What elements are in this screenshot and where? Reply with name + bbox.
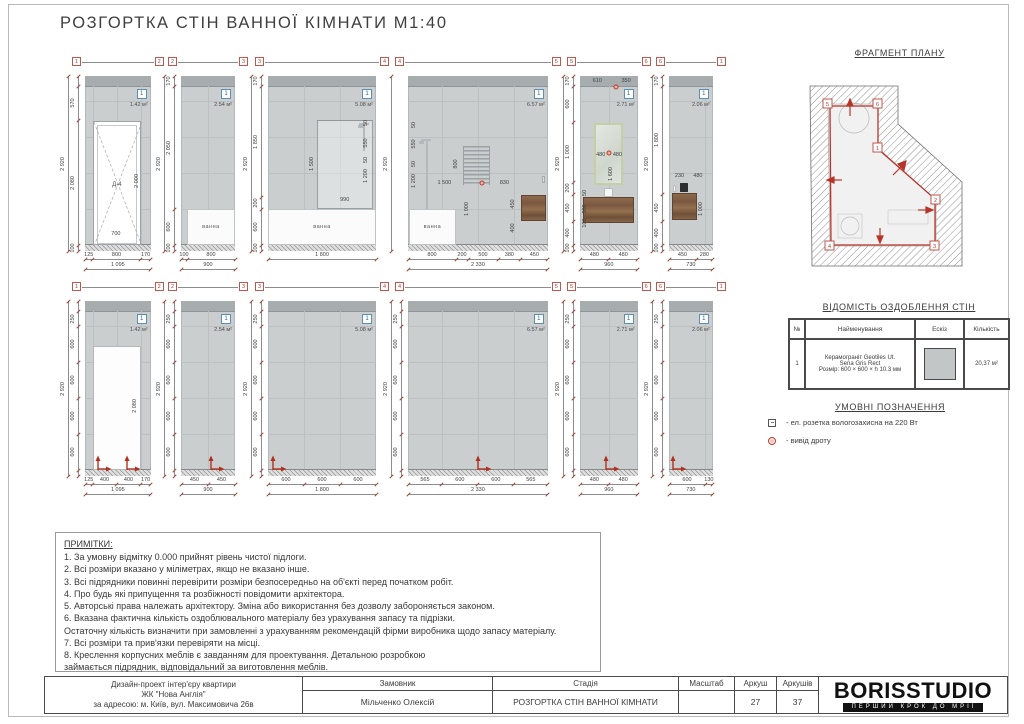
dimension-label: 600 xyxy=(166,448,172,457)
dim-line xyxy=(563,301,564,476)
bathtub: ванна xyxy=(268,209,376,245)
wall-elevation: 11.42 м²2 080 xyxy=(85,301,151,476)
wood-cabinet xyxy=(583,197,634,223)
dimension-label: 600 xyxy=(393,376,399,385)
svg-text:5: 5 xyxy=(826,102,829,108)
dimension-label: 450 xyxy=(530,252,539,258)
dimension-label: 2 920 xyxy=(644,382,650,396)
fragment-plan-title: ФРАГМЕНТ ПЛАНУ xyxy=(792,48,1007,58)
dimension-label: 2 920 xyxy=(156,157,162,171)
sheets-total-label: Аркушів xyxy=(777,677,818,691)
dimension-label: 500 xyxy=(478,252,487,258)
client-cell: Замовник Мільченко Олексій xyxy=(303,677,493,713)
sheet-number-value: 27 xyxy=(735,691,776,713)
wall-elevation: 11.42 м²Д-42 000700 xyxy=(85,76,151,251)
dimension-label: 600 xyxy=(565,412,571,421)
wall-marker: 6 xyxy=(642,282,651,291)
ceiling-band xyxy=(669,76,713,87)
dimension-label: 800 xyxy=(112,252,121,258)
dimension-label: 100 xyxy=(166,244,172,253)
sheets-total-cell: Аркушів 37 xyxy=(777,677,819,713)
dimension-label: 600 xyxy=(166,223,172,232)
dimension-label: 600 xyxy=(70,340,76,349)
dim-line xyxy=(669,269,713,270)
wall-marker: 4 xyxy=(395,57,404,66)
dimension-label: 380 xyxy=(505,252,514,258)
dimension-label: 50 xyxy=(363,120,369,126)
area-label: 5.08 м² xyxy=(355,327,373,333)
plan-wall-marker: 3 xyxy=(930,241,939,250)
dimension-total: 900 xyxy=(203,487,212,493)
wall-marker: 5 xyxy=(567,57,576,66)
dimension-label: 2 920 xyxy=(60,157,66,171)
dimension-label: 230 xyxy=(675,173,684,179)
socket-icon xyxy=(764,419,780,427)
note-line: Остаточну кількість визначити при замовл… xyxy=(64,625,592,637)
sink xyxy=(673,185,676,192)
wall-marker: 3 xyxy=(239,282,248,291)
legend-item-text: - ел. розетка вологозахисна на 220 Вт xyxy=(786,418,918,427)
dim-line xyxy=(669,494,713,495)
wall-elevation: 12.06 м²2304801 000 xyxy=(669,76,713,251)
plan-wall-marker: 2 xyxy=(931,195,940,204)
dimension-label: 1 500 xyxy=(437,180,451,186)
dimension-label: 50 xyxy=(582,190,588,196)
dimension-total: 1 095 xyxy=(111,487,125,493)
dimension-label: 600 xyxy=(253,340,259,349)
dimension-label: 1 000 xyxy=(464,202,470,216)
dimension-label: 830 xyxy=(500,180,509,186)
wall-marker: 2 xyxy=(155,282,164,291)
dim-line xyxy=(85,269,151,270)
area-label: 6.57 м² xyxy=(527,327,545,333)
wall-marker: 2 xyxy=(155,57,164,66)
dimension-label: 800 xyxy=(453,159,459,168)
dimension-total: 730 xyxy=(686,487,695,493)
dimension-label: 480 xyxy=(596,152,605,158)
tile-joint-h xyxy=(669,137,713,138)
dimension-label: 2 000 xyxy=(134,174,140,188)
tile-joint-v xyxy=(340,311,341,470)
wire-outlet-icon xyxy=(480,180,485,185)
plan-wall-marker: 4 xyxy=(825,241,834,250)
dim-line xyxy=(268,494,376,495)
dim-line xyxy=(85,494,151,495)
dimension-label: 600 xyxy=(565,376,571,385)
floor-hatch xyxy=(181,244,235,251)
marker-line xyxy=(577,62,641,63)
wood-cabinet xyxy=(672,193,697,219)
finish-table-cell-num: 1 xyxy=(789,339,805,389)
dim-line xyxy=(181,259,235,260)
bathtub: ванна xyxy=(409,209,455,245)
svg-text:1: 1 xyxy=(876,146,879,152)
area-label: 2.06 м² xyxy=(692,102,710,108)
area-badge: 1 xyxy=(221,314,231,324)
note-line: 6. Вказана фактична кількість оздоблювал… xyxy=(64,612,592,624)
wall-marker: 5 xyxy=(567,282,576,291)
note-line: займається підрядник, відповідальний за … xyxy=(64,661,592,673)
tile-origin-axis-icon xyxy=(270,455,288,473)
dimension-label: 600 xyxy=(654,376,660,385)
note-line: 2. Всі розміри вказано у міліметрах, якщ… xyxy=(64,563,592,575)
area-badge: 1 xyxy=(534,314,544,324)
door-tag: Д-4 xyxy=(112,182,121,188)
dimension-label: 250 xyxy=(166,314,172,323)
area-label: 1.42 м² xyxy=(130,327,148,333)
dimension-label: 400 xyxy=(565,229,571,238)
dim-line xyxy=(408,259,548,260)
tile-joint-v xyxy=(705,311,706,470)
dimension-label: 565 xyxy=(526,477,535,483)
wire-outlet-icon xyxy=(768,437,776,445)
area-badge: 1 xyxy=(624,314,634,324)
area-label: 2.71 м² xyxy=(617,327,635,333)
dim-line xyxy=(573,76,574,251)
dimension-label: 800 xyxy=(206,252,215,258)
wall-elevation: 16.57 м² xyxy=(408,301,548,476)
area-badge: 1 xyxy=(624,89,634,99)
dim-line xyxy=(662,76,663,251)
area-badge: 1 xyxy=(137,314,147,324)
dimension-label: 600 xyxy=(491,477,500,483)
dimension-label: 600 xyxy=(393,340,399,349)
wall-elevation: 12.06 м² xyxy=(669,301,713,476)
dimension-label: 600 xyxy=(166,412,172,421)
dim-line xyxy=(251,76,252,251)
dimension-label: 170 xyxy=(141,477,150,483)
wall-marker: 3 xyxy=(255,57,264,66)
dimension-label: 480 xyxy=(693,173,702,179)
dimension-label: 700 xyxy=(111,231,120,237)
tile-origin-axis-icon xyxy=(475,455,493,473)
dimension-label: 170 xyxy=(565,77,571,86)
dim-line xyxy=(251,301,252,476)
dimension-label: 600 xyxy=(70,412,76,421)
wall-elevation: 12.71 м² xyxy=(580,301,638,476)
legend-item: - ел. розетка вологозахисна на 220 Вт xyxy=(764,418,1016,427)
dimension-label: 2 920 xyxy=(60,382,66,396)
marker-line xyxy=(265,62,379,63)
tile-joint-v xyxy=(514,311,515,470)
floor-hatch xyxy=(580,244,638,251)
area-label: 6.57 м² xyxy=(527,102,545,108)
dimension-label: 1 800 xyxy=(654,133,660,147)
client-value: Мільченко Олексій xyxy=(303,691,492,713)
dimension-label: 1 600 xyxy=(608,167,614,181)
dimension-label: 250 xyxy=(565,314,571,323)
dimension-total: 730 xyxy=(686,262,695,268)
marker-line xyxy=(405,62,551,63)
area-label: 2.71 м² xyxy=(617,102,635,108)
marker-line xyxy=(666,62,716,63)
marker-line xyxy=(666,287,716,288)
socket-icon xyxy=(768,419,776,427)
project-info: Дизайн-проект інтер'єру квартири ЖК "Нов… xyxy=(45,677,303,713)
dimension-total: 960 xyxy=(604,262,613,268)
studio-logo: BORISSTUDIO ПЕРШИЙ КРОК ДО МРІЇ xyxy=(819,677,1007,713)
dim-line xyxy=(164,76,165,251)
dimension-label: 1 000 xyxy=(698,202,704,216)
marker-line xyxy=(178,62,238,63)
wall-marker: 1 xyxy=(72,282,81,291)
sheet-number-label: Аркуш xyxy=(735,677,776,691)
finish-table-title: ВІДОМІСТЬ ОЗДОБЛЕННЯ СТІН xyxy=(788,302,1010,312)
wire-outlet-icon xyxy=(764,437,780,445)
svg-text:3: 3 xyxy=(933,244,936,250)
project-line: ЖК "Нова Англія" xyxy=(141,690,205,700)
dim-line xyxy=(652,301,653,476)
marker-line xyxy=(178,287,238,288)
svg-text:4: 4 xyxy=(828,244,831,250)
client-label: Замовник xyxy=(303,677,492,691)
dimension-label: 100 xyxy=(582,218,588,227)
shower-head xyxy=(358,125,363,128)
wall-marker: 3 xyxy=(239,57,248,66)
dimension-label: 600 xyxy=(253,376,259,385)
area-label: 2.06 м² xyxy=(692,327,710,333)
dim-line xyxy=(68,76,69,251)
dimension-label: 125 xyxy=(84,477,93,483)
dimension-label: 250 xyxy=(654,314,660,323)
dimension-label: 400 xyxy=(510,224,516,233)
finish-table-cell-sketch xyxy=(915,339,964,389)
tile-origin-axis-icon xyxy=(95,455,113,473)
dimension-label: 450 xyxy=(654,203,660,212)
dimension-label: 600 xyxy=(253,412,259,421)
dimension-label: 1 000 xyxy=(565,145,571,159)
studio-slogan: ПЕРШИЙ КРОК ДО МРІЇ xyxy=(843,703,982,712)
notes-lines: 1. За умовну відмітку 0.000 прийнят ріве… xyxy=(64,551,592,673)
dimension-label: 2 920 xyxy=(555,157,561,171)
dimension-label: 800 xyxy=(427,252,436,258)
dim-line xyxy=(268,484,376,485)
wall-marker: 4 xyxy=(380,57,389,66)
dimension-label: 600 xyxy=(565,340,571,349)
tile-joint-v xyxy=(705,86,706,245)
area-badge: 1 xyxy=(699,314,709,324)
dimension-label: 2 920 xyxy=(383,157,389,171)
floor-hatch xyxy=(268,244,376,251)
area-badge: 1 xyxy=(221,89,231,99)
tile-swatch xyxy=(924,348,956,380)
project-line: за адресою: м. Київ, вул. Максимовича 26… xyxy=(93,700,253,710)
dimension-label: 250 xyxy=(393,314,399,323)
dim-line xyxy=(78,76,79,251)
dimension-label: 600 xyxy=(393,448,399,457)
wall-marker: 2 xyxy=(168,282,177,291)
dimension-label: 400 xyxy=(124,477,133,483)
dim-line xyxy=(408,269,548,270)
finish-table-header-name: Найменування xyxy=(805,319,915,339)
wall-marker: 4 xyxy=(380,282,389,291)
wall-marker: 6 xyxy=(642,57,651,66)
wall-marker: 1 xyxy=(72,57,81,66)
dimension-label: 450 xyxy=(510,199,516,208)
area-badge: 1 xyxy=(362,314,372,324)
finish-table-cell-name: Керамограніт Geotiles Ut. Sena Gris Rect… xyxy=(805,339,915,389)
wall-elevation: 12.54 м² xyxy=(181,301,235,476)
dimension-label: 600 xyxy=(253,448,259,457)
tile-origin-axis-icon xyxy=(208,455,226,473)
dimension-label: 600 xyxy=(654,340,660,349)
title-block: Дизайн-проект інтер'єру квартири ЖК "Нов… xyxy=(44,676,1008,714)
area-label: 1.42 м² xyxy=(130,102,148,108)
shower-head xyxy=(419,141,424,144)
tile-joint-v xyxy=(514,86,515,245)
bathtub-label: ванна xyxy=(313,224,331,230)
area-badge: 1 xyxy=(699,89,709,99)
dim-line xyxy=(580,494,638,495)
dimension-total: 1 800 xyxy=(315,487,329,493)
sheet-title: РОЗГОРТКА СТІН ВАННОЇ КІМНАТИ М1:40 xyxy=(60,14,448,33)
svg-text:2: 2 xyxy=(934,198,937,204)
wall-marker: 1 xyxy=(717,57,726,66)
wall-marker: 2 xyxy=(168,57,177,66)
dimension-label: 2 920 xyxy=(644,157,650,171)
tile-joint-h xyxy=(268,434,376,435)
wall-marker: 6 xyxy=(656,57,665,66)
project-line: Дизайн-проект інтер'єру квартири xyxy=(111,680,236,690)
dimension-total: 960 xyxy=(604,487,613,493)
tile-joint-v xyxy=(478,311,479,470)
dimension-label: 1 500 xyxy=(309,157,315,171)
floor-hatch xyxy=(669,244,713,251)
dim-line xyxy=(68,301,69,476)
bathtub-label: ванна xyxy=(424,224,442,230)
plan-wall-marker: 1 xyxy=(873,143,882,152)
dimension-label: 480 xyxy=(613,152,622,158)
dim-line xyxy=(408,494,548,495)
dimension-label: 200 xyxy=(565,184,571,193)
dim-line xyxy=(164,301,165,476)
shower-column xyxy=(426,139,428,209)
note-line: 1. За умовну відмітку 0.000 прийнят ріве… xyxy=(64,551,592,563)
dimension-label: 600 xyxy=(70,376,76,385)
finish-table-cell-qty: 20,37 м² xyxy=(964,339,1009,389)
towel-radiator xyxy=(463,146,491,185)
material-size-line: Розмір: 600 × 600 × h 10.3 мм xyxy=(819,367,901,373)
area-label: 2.54 м² xyxy=(214,102,232,108)
finish-table: № Найменування Ескіз Кількість 1 Керамог… xyxy=(788,318,1010,390)
tile-joint-h xyxy=(268,362,376,363)
dimension-label: 450 xyxy=(217,477,226,483)
dimension-label: 170 xyxy=(654,77,660,86)
dimension-label: 550 xyxy=(411,140,417,149)
dimension-label: 50 xyxy=(363,157,369,163)
bathtub: ванна xyxy=(187,209,235,245)
plan-wall-marker: 6 xyxy=(873,99,882,108)
area-badge: 1 xyxy=(362,89,372,99)
wall-marker: 5 xyxy=(552,57,561,66)
note-line: 8. Креслення корпусних меблів є завдання… xyxy=(64,649,592,661)
dimension-total: 1 095 xyxy=(111,262,125,268)
legend-item-text: - вивід дроту xyxy=(786,436,831,445)
dimension-label: 565 xyxy=(420,477,429,483)
dimension-label: 600 xyxy=(654,448,660,457)
dimension-label: 1 800 xyxy=(315,252,329,258)
floor-hatch xyxy=(408,244,548,251)
ceiling-band xyxy=(268,301,376,312)
area-badge: 1 xyxy=(534,89,544,99)
wall-marker: 1 xyxy=(717,282,726,291)
sheet-number-cell: Аркуш 27 xyxy=(735,677,777,713)
area-label: 5.08 м² xyxy=(355,102,373,108)
dimension-label: 600 xyxy=(682,477,691,483)
stage-cell: Стадія РОЗГОРТКА СТІН ВАННОЇ КІМНАТИ xyxy=(493,677,679,713)
stage-value: РОЗГОРТКА СТІН ВАННОЇ КІМНАТИ xyxy=(493,691,678,713)
dimension-label: 350 xyxy=(621,78,630,84)
scale-cell: Масштаб xyxy=(679,677,735,713)
dimension-label: 600 xyxy=(317,477,326,483)
dimension-label: 600 xyxy=(393,412,399,421)
dimension-label: 100 xyxy=(654,244,660,253)
dimension-label: 600 xyxy=(253,223,259,232)
dimension-label: 600 xyxy=(166,376,172,385)
dimension-label: 200 xyxy=(253,199,259,208)
wall-marker: 4 xyxy=(395,282,404,291)
fragment-plan: 561234 xyxy=(792,60,1007,278)
dim-line xyxy=(174,76,175,251)
tile-joint-h xyxy=(669,362,713,363)
wall-marker: 5 xyxy=(552,282,561,291)
dim-line xyxy=(563,76,564,251)
dim-line xyxy=(652,76,653,251)
dimension-total: 2 330 xyxy=(471,262,485,268)
drawing-sheet: РОЗГОРТКА СТІН ВАННОЇ КІМНАТИ М1:40 ФРАГ… xyxy=(0,0,1024,724)
dimension-label: 600 xyxy=(455,477,464,483)
dimension-label: 170 xyxy=(253,77,259,86)
area-badge: 1 xyxy=(137,89,147,99)
tile-joint-h xyxy=(669,434,713,435)
studio-logo-text: BORISSTUDIO xyxy=(834,680,992,702)
marker-line xyxy=(82,62,154,63)
wall-elevation: 15.08 м² xyxy=(268,301,376,476)
dimension-label: 1 200 xyxy=(411,174,417,188)
dim-line xyxy=(391,76,392,251)
wall-marker: 3 xyxy=(255,282,264,291)
dim-line xyxy=(181,494,235,495)
dimension-label: 600 xyxy=(565,448,571,457)
dimension-label: 600 xyxy=(166,340,172,349)
dimension-label: 130 xyxy=(704,477,713,483)
dimension-label: 400 xyxy=(100,477,109,483)
tile-origin-axis-icon xyxy=(603,455,621,473)
dimension-label: 50 xyxy=(411,122,417,128)
plan-wall-marker: 5 xyxy=(823,99,832,108)
tile-joint-v xyxy=(442,311,443,470)
note-line: 4. Про будь які припущення та розбіжност… xyxy=(64,588,592,600)
finish-table-header-num: № xyxy=(789,319,805,339)
wall-device xyxy=(680,183,689,192)
dimension-label: 600 xyxy=(654,412,660,421)
wire-outlet-icon xyxy=(613,84,618,89)
dimension-label: 550 xyxy=(363,138,369,147)
wall-elevation: 16.57 м²ванна8001 5008301 0004504001 200… xyxy=(408,76,548,251)
wall-elevation: 15.08 м²ванна1 5009901 2005505050 xyxy=(268,76,376,251)
dimension-label: 200 xyxy=(457,252,466,258)
dimension-label: 600 xyxy=(565,100,571,109)
tile-joint-v xyxy=(609,311,610,470)
dimension-label: 600 xyxy=(281,477,290,483)
fragment-plan-drawing: 561234 xyxy=(792,60,1007,278)
wall-marker: 6 xyxy=(656,282,665,291)
dim-line xyxy=(391,301,392,476)
marker-line xyxy=(405,287,551,288)
wall-elevation: 12.54 м²ванна xyxy=(181,76,235,251)
finish-table-header-sketch: Ескіз xyxy=(915,319,964,339)
dimension-label: 2 080 xyxy=(70,176,76,190)
